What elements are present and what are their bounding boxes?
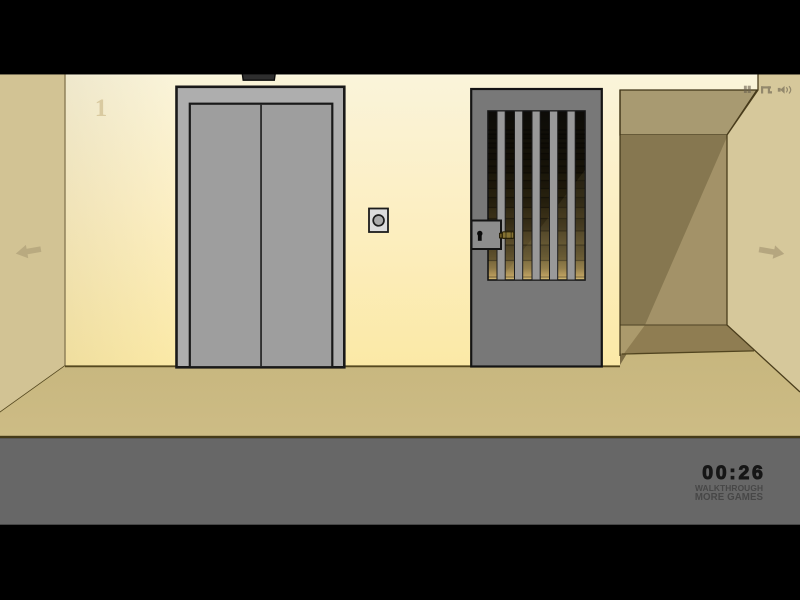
svg-text:00:26: 00:26 [702, 462, 765, 484]
svg-text:1: 1 [95, 95, 108, 122]
svg-text:MORE GAMES: MORE GAMES [695, 492, 764, 503]
